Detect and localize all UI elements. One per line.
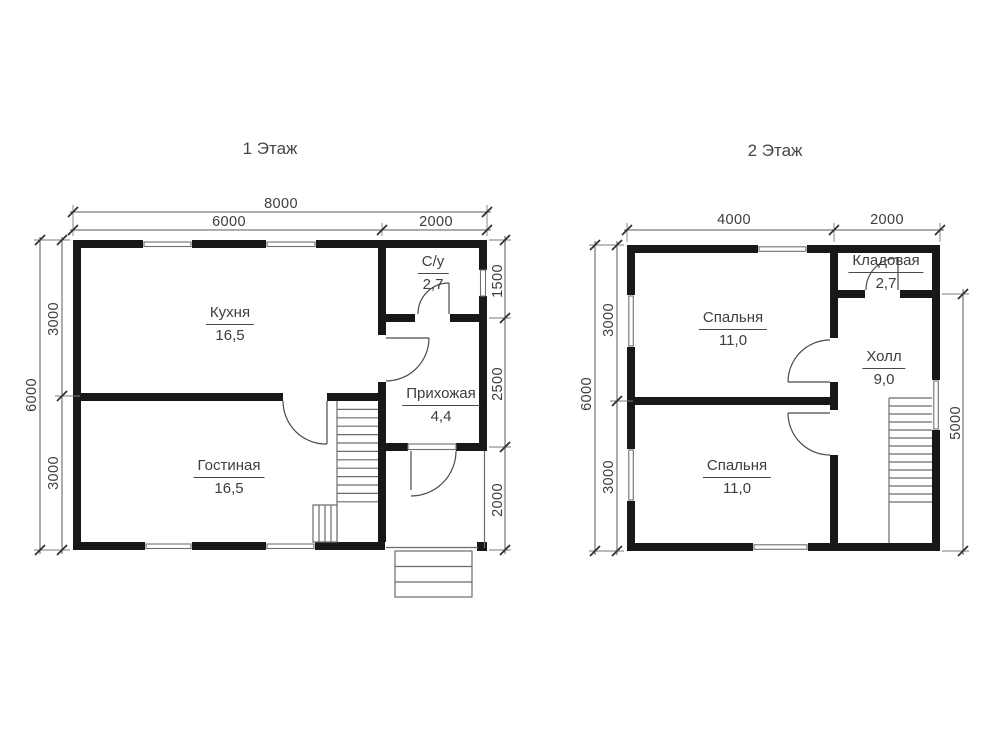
floor1-veranda bbox=[386, 444, 485, 548]
room-name: Спальня bbox=[703, 456, 771, 478]
room-label-bedroom-2: Спальня 11,0 bbox=[703, 456, 771, 498]
dim-floor1-total-width: 8000 bbox=[264, 196, 298, 212]
dim-floor1-right-mid: 2500 bbox=[490, 367, 506, 401]
dim-floor2-width-main: 4000 bbox=[717, 212, 751, 228]
dim-floor2-height-top: 3000 bbox=[601, 303, 617, 337]
dim-floor1-height-bottom: 3000 bbox=[46, 456, 62, 490]
room-label-hallway: Прихожая 4,4 bbox=[402, 384, 480, 426]
room-label-storage: Кладовая 2,7 bbox=[848, 251, 923, 293]
floor2-stairs bbox=[889, 398, 932, 543]
dim-floor1-right-top: 1500 bbox=[490, 264, 506, 298]
dim-floor2-width-right: 2000 bbox=[870, 212, 904, 228]
floor1-stairs bbox=[313, 401, 378, 542]
room-area: 9,0 bbox=[862, 370, 905, 390]
room-area: 16,5 bbox=[206, 326, 254, 346]
room-label-living-room: Гостиная 16,5 bbox=[194, 456, 265, 498]
dim-floor1-right-bottom: 2000 bbox=[490, 483, 506, 517]
room-name: Гостиная bbox=[194, 456, 265, 478]
dim-floor1-width-right: 2000 bbox=[419, 214, 453, 230]
room-name: Кладовая bbox=[848, 251, 923, 273]
floor1-porch-steps bbox=[395, 551, 472, 597]
room-label-hall: Холл 9,0 bbox=[862, 347, 905, 389]
room-area: 11,0 bbox=[699, 331, 767, 351]
room-label-bedroom-1: Спальня 11,0 bbox=[699, 308, 767, 350]
floor1-title: 1 Этаж bbox=[243, 139, 298, 159]
dim-floor1-width-main: 6000 bbox=[212, 214, 246, 230]
room-name: С/у bbox=[418, 252, 449, 274]
room-area: 2,7 bbox=[848, 274, 923, 294]
room-area: 11,0 bbox=[703, 479, 771, 499]
room-label-bathroom: С/у 2,7 bbox=[418, 252, 449, 294]
dim-floor1-total-height: 6000 bbox=[24, 378, 40, 412]
room-area: 4,4 bbox=[402, 407, 480, 427]
room-label-kitchen: Кухня 16,5 bbox=[206, 303, 254, 345]
room-area: 16,5 bbox=[194, 479, 265, 499]
room-name: Кухня bbox=[206, 303, 254, 325]
dim-floor2-height-bottom: 3000 bbox=[601, 460, 617, 494]
room-name: Прихожая bbox=[402, 384, 480, 406]
dim-floor1-height-top: 3000 bbox=[46, 302, 62, 336]
dim-floor2-right-height: 5000 bbox=[948, 406, 964, 440]
floorplan-canvas: 1 Этаж 2 Этаж Кухня 16,5 Гостиная 16,5 С… bbox=[0, 0, 1000, 750]
room-area: 2,7 bbox=[418, 275, 449, 295]
floor2-title: 2 Этаж bbox=[748, 141, 803, 161]
room-name: Спальня bbox=[699, 308, 767, 330]
dim-floor2-total-height: 6000 bbox=[579, 377, 595, 411]
room-name: Холл bbox=[862, 347, 905, 369]
